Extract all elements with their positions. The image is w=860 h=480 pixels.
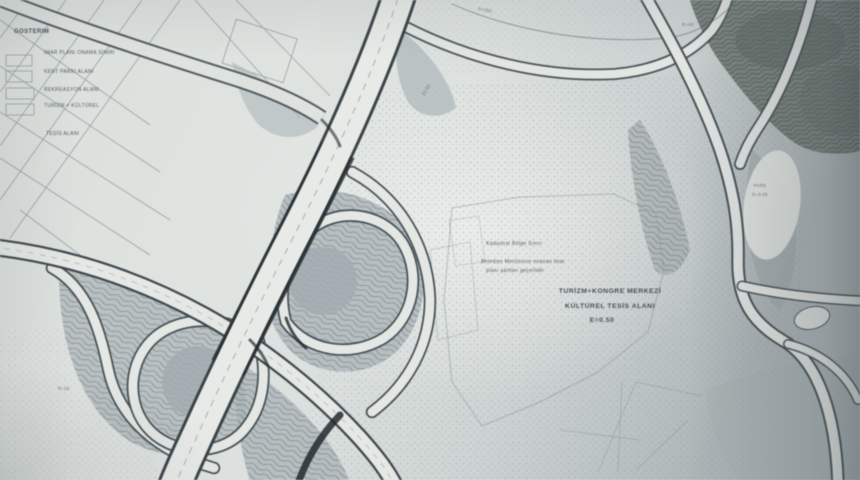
- legend-item: REKREASYON ALANI: [44, 87, 99, 93]
- zone-density-value: E=0.50: [590, 317, 615, 324]
- zone-title-line2: KÜLTÜREL TESİS ALANI: [565, 301, 655, 310]
- plan-note-line1: Kadastral Bölge Sınırı: [486, 241, 542, 247]
- radius-label: R=40: [682, 22, 694, 27]
- legend-title: GÖSTERİM: [14, 28, 49, 35]
- zone-title-line1: TURİZM+KONGRE MERKEZİ: [559, 287, 661, 295]
- legend-item: TESİS ALANI: [46, 130, 79, 137]
- legend-item: İMAR PLANI ONAMA SINIRI: [44, 49, 115, 56]
- plan-note-line2: Belediye Meclisince onanan imar: [481, 259, 565, 265]
- radius-label: R=25: [58, 386, 70, 391]
- plan-note-line3: planı şartları geçerlidir: [486, 268, 544, 274]
- park-density-label: E=0.05: [752, 192, 768, 197]
- legend-item: KENT PARKI ALANI: [44, 69, 94, 75]
- map-drawing-svg: GÖSTERİM İMAR PLANI ONAMA SINIRI KENT PA…: [0, 0, 860, 480]
- legend-item: TURİZM + KÜLTÜREL: [44, 102, 99, 109]
- park-label: PARK: [754, 183, 767, 188]
- plan-photo: GÖSTERİM İMAR PLANI ONAMA SINIRI KENT PA…: [0, 0, 860, 480]
